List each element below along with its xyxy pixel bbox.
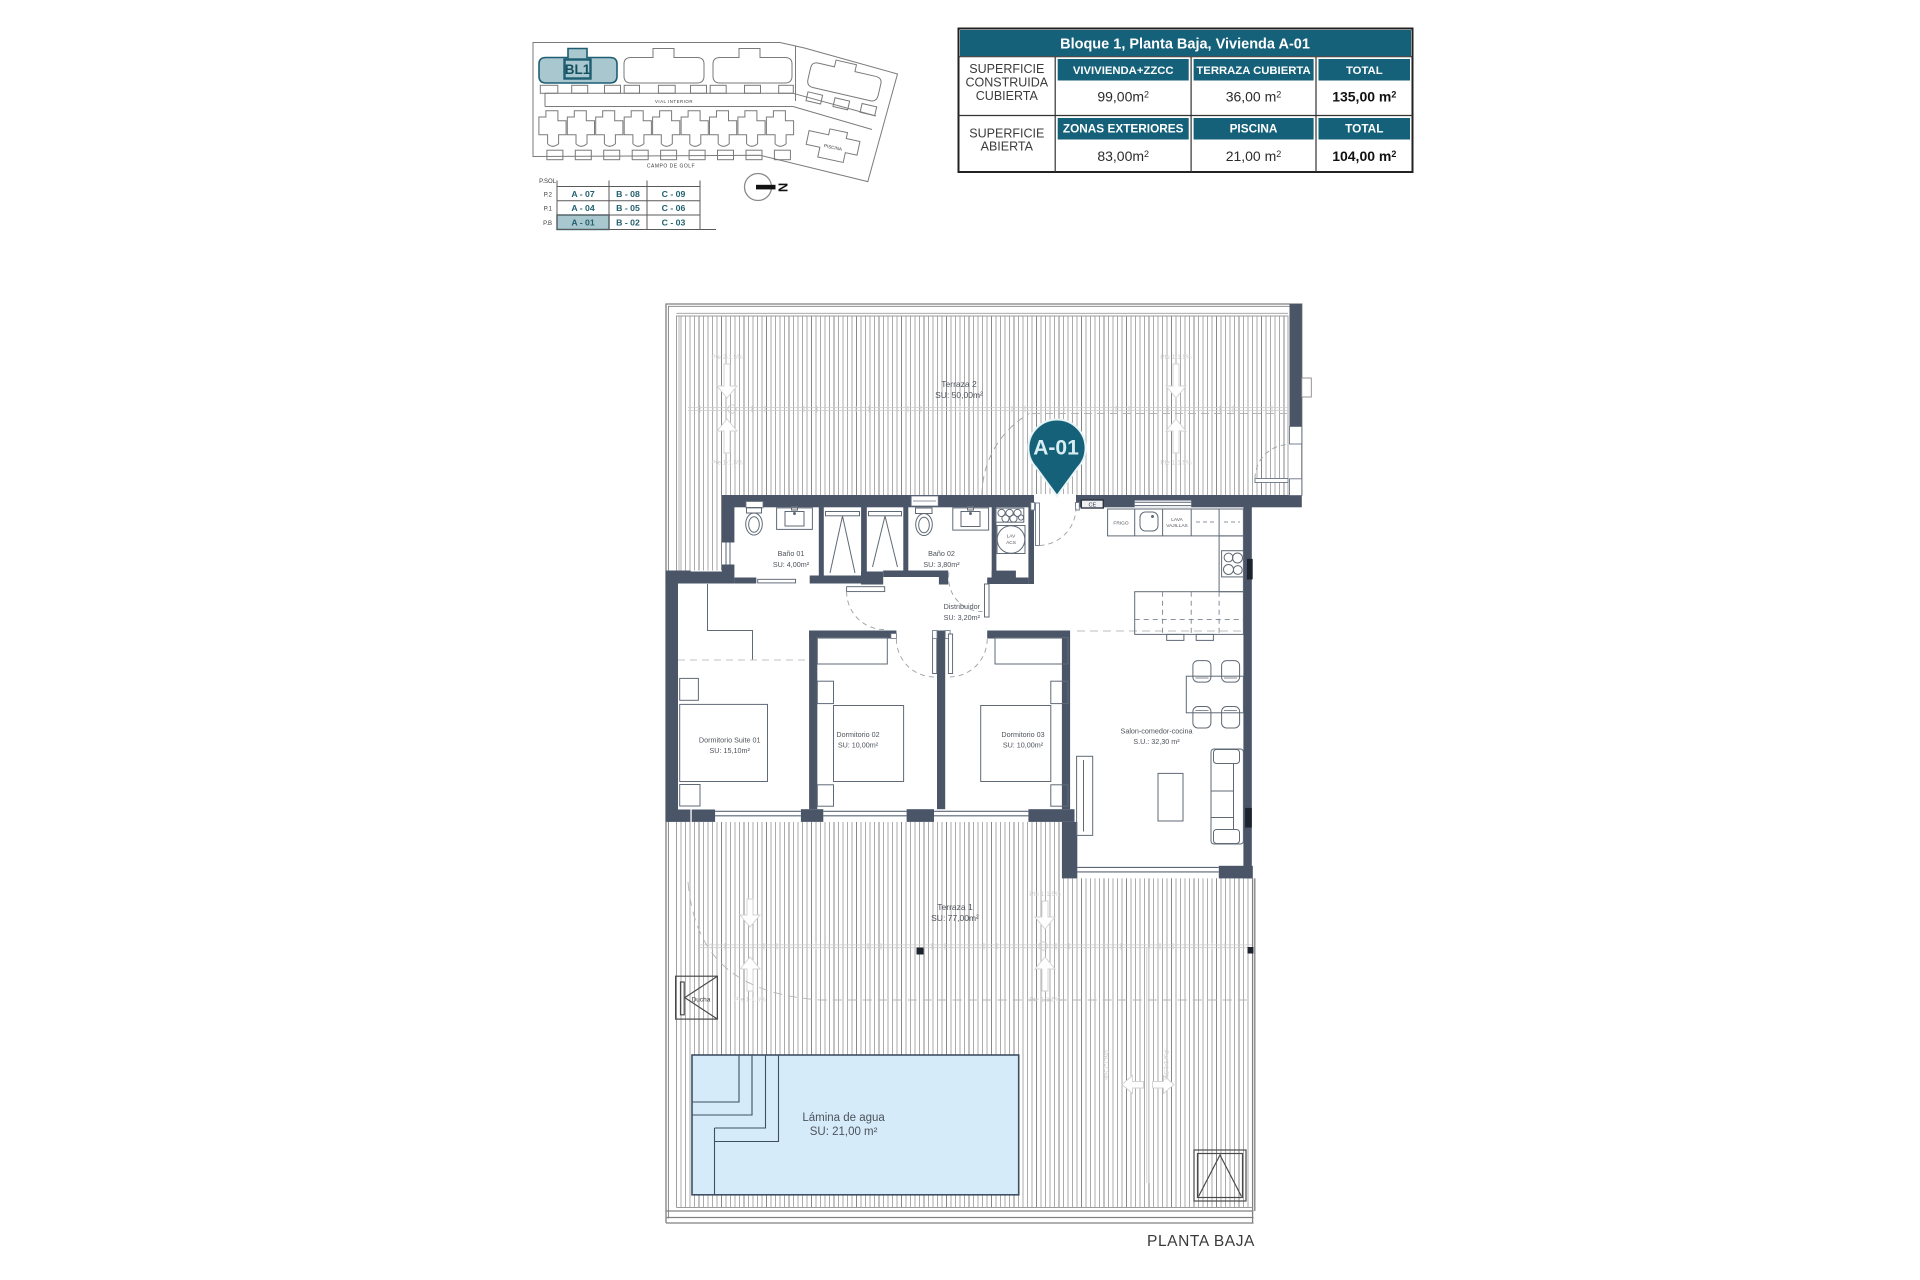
svg-text:Terraza 2: Terraza 2	[941, 379, 977, 389]
svg-text:PISCINA: PISCINA	[1230, 122, 1278, 136]
svg-text:SU: 77,00m²: SU: 77,00m²	[931, 913, 979, 923]
svg-text:Baño 02: Baño 02	[928, 549, 955, 558]
svg-text:S.U.: 32,30 m²: S.U.: 32,30 m²	[1133, 737, 1180, 746]
svg-text:Pte 1-1.5%: Pte 1-1.5%	[711, 460, 743, 467]
svg-text:CONSTRUIDA: CONSTRUIDA	[965, 76, 1048, 90]
svg-text:TOTAL: TOTAL	[1345, 122, 1383, 136]
svg-text:P.SOL: P.SOL	[539, 179, 557, 185]
svg-text:135,00 m2: 135,00 m2	[1332, 89, 1396, 105]
svg-text:Distribuidor: Distribuidor	[944, 602, 981, 611]
svg-text:Dormitorio 03: Dormitorio 03	[1001, 730, 1044, 739]
svg-text:BL1: BL1	[565, 62, 591, 77]
svg-text:VAJILLAS: VAJILLAS	[1166, 523, 1188, 529]
svg-text:B - 08: B - 08	[616, 189, 640, 199]
svg-text:SU: 50,00m²: SU: 50,00m²	[935, 390, 983, 400]
svg-text:21,00 m2: 21,00 m2	[1226, 148, 1282, 164]
svg-text:SU: 10,00m²: SU: 10,00m²	[1003, 741, 1044, 750]
svg-text:SUPERFICIE: SUPERFICIE	[969, 127, 1044, 141]
svg-text:Pte 1-1.5%: Pte 1-1.5%	[1162, 1050, 1168, 1080]
svg-text:Ducha: Ducha	[692, 997, 711, 1004]
svg-text:Baño 01: Baño 01	[778, 549, 805, 558]
svg-text:SU: 15,10m²: SU: 15,10m²	[710, 746, 751, 755]
svg-text:B - 02: B - 02	[616, 218, 640, 228]
svg-text:A-01: A-01	[1033, 437, 1079, 460]
svg-text:Pte 1-1.5%: Pte 1-1.5%	[734, 997, 766, 1004]
svg-text:B - 05: B - 05	[616, 203, 640, 213]
svg-text:Pte 1-1.5%: Pte 1-1.5%	[1160, 460, 1192, 467]
svg-text:99,00m2: 99,00m2	[1097, 89, 1149, 105]
svg-text:C - 09: C - 09	[662, 189, 686, 199]
svg-text:A - 07: A - 07	[571, 189, 595, 199]
svg-text:Bloque 1, Planta Baja, Viviend: Bloque 1, Planta Baja, Vivienda A-01	[1060, 37, 1310, 53]
svg-text:Pte 1-1.5%: Pte 1-1.5%	[1160, 354, 1192, 361]
svg-text:SUPERFICIE: SUPERFICIE	[969, 62, 1044, 76]
svg-text:CUBIERTA: CUBIERTA	[976, 89, 1039, 103]
svg-text:CAMPO DE GOLF: CAMPO DE GOLF	[647, 164, 695, 170]
svg-text:SU: 4,00m²: SU: 4,00m²	[773, 560, 810, 569]
svg-text:P.B: P.B	[543, 221, 552, 227]
svg-text:TERRAZA CUBIERTA: TERRAZA CUBIERTA	[1196, 65, 1310, 77]
svg-text:Pte 1-1.5%: Pte 1-1.5%	[1029, 891, 1061, 898]
svg-text:SU: 3,20m²: SU: 3,20m²	[944, 613, 981, 622]
svg-text:FRIGO: FRIGO	[1113, 521, 1128, 527]
svg-text:VIAL INTERIOR: VIAL INTERIOR	[655, 99, 693, 104]
svg-text:P.1: P.1	[544, 207, 553, 213]
svg-text:Terraza 1: Terraza 1	[937, 902, 973, 912]
svg-text:SU: 3,80m²: SU: 3,80m²	[923, 560, 960, 569]
svg-text:Dormitorio Suite 01: Dormitorio Suite 01	[699, 736, 761, 745]
svg-text:A - 04: A - 04	[571, 203, 595, 213]
svg-text:SU: 21,00 m²: SU: 21,00 m²	[810, 1126, 878, 1138]
svg-text:A - 01: A - 01	[571, 218, 595, 228]
svg-text:ZONAS EXTERIORES: ZONAS EXTERIORES	[1063, 122, 1184, 136]
svg-text:ABIERTA: ABIERTA	[981, 140, 1034, 154]
svg-text:PLANTA BAJA: PLANTA BAJA	[1147, 1233, 1255, 1250]
svg-text:N: N	[776, 183, 791, 192]
svg-text:104,00 m2: 104,00 m2	[1332, 148, 1396, 164]
svg-text:Salon-comedor-cocina: Salon-comedor-cocina	[1121, 727, 1193, 736]
svg-text:C - 03: C - 03	[662, 218, 686, 228]
svg-text:ACS: ACS	[1006, 540, 1016, 546]
svg-text:C - 06: C - 06	[662, 203, 686, 213]
svg-text:Pte 1-1.5%: Pte 1-1.5%	[1102, 1050, 1108, 1080]
svg-text:83,00m2: 83,00m2	[1097, 148, 1149, 164]
svg-text:LAV: LAV	[1007, 534, 1017, 540]
svg-text:Lámina de agua: Lámina de agua	[802, 1112, 885, 1124]
svg-text:36,00 m2: 36,00 m2	[1226, 89, 1282, 105]
svg-text:Dormitorio 02: Dormitorio 02	[836, 730, 879, 739]
svg-text:SU: 10,00m²: SU: 10,00m²	[838, 741, 879, 750]
svg-text:P.2: P.2	[544, 193, 553, 199]
svg-text:CE: CE	[1088, 502, 1096, 508]
svg-text:TOTAL: TOTAL	[1346, 65, 1383, 77]
svg-text:VIVIVIENDA+ZZCC: VIVIVIENDA+ZZCC	[1073, 65, 1174, 77]
svg-text:LAVA: LAVA	[1171, 517, 1183, 523]
svg-text:Pte 2-1.5%: Pte 2-1.5%	[711, 354, 743, 361]
